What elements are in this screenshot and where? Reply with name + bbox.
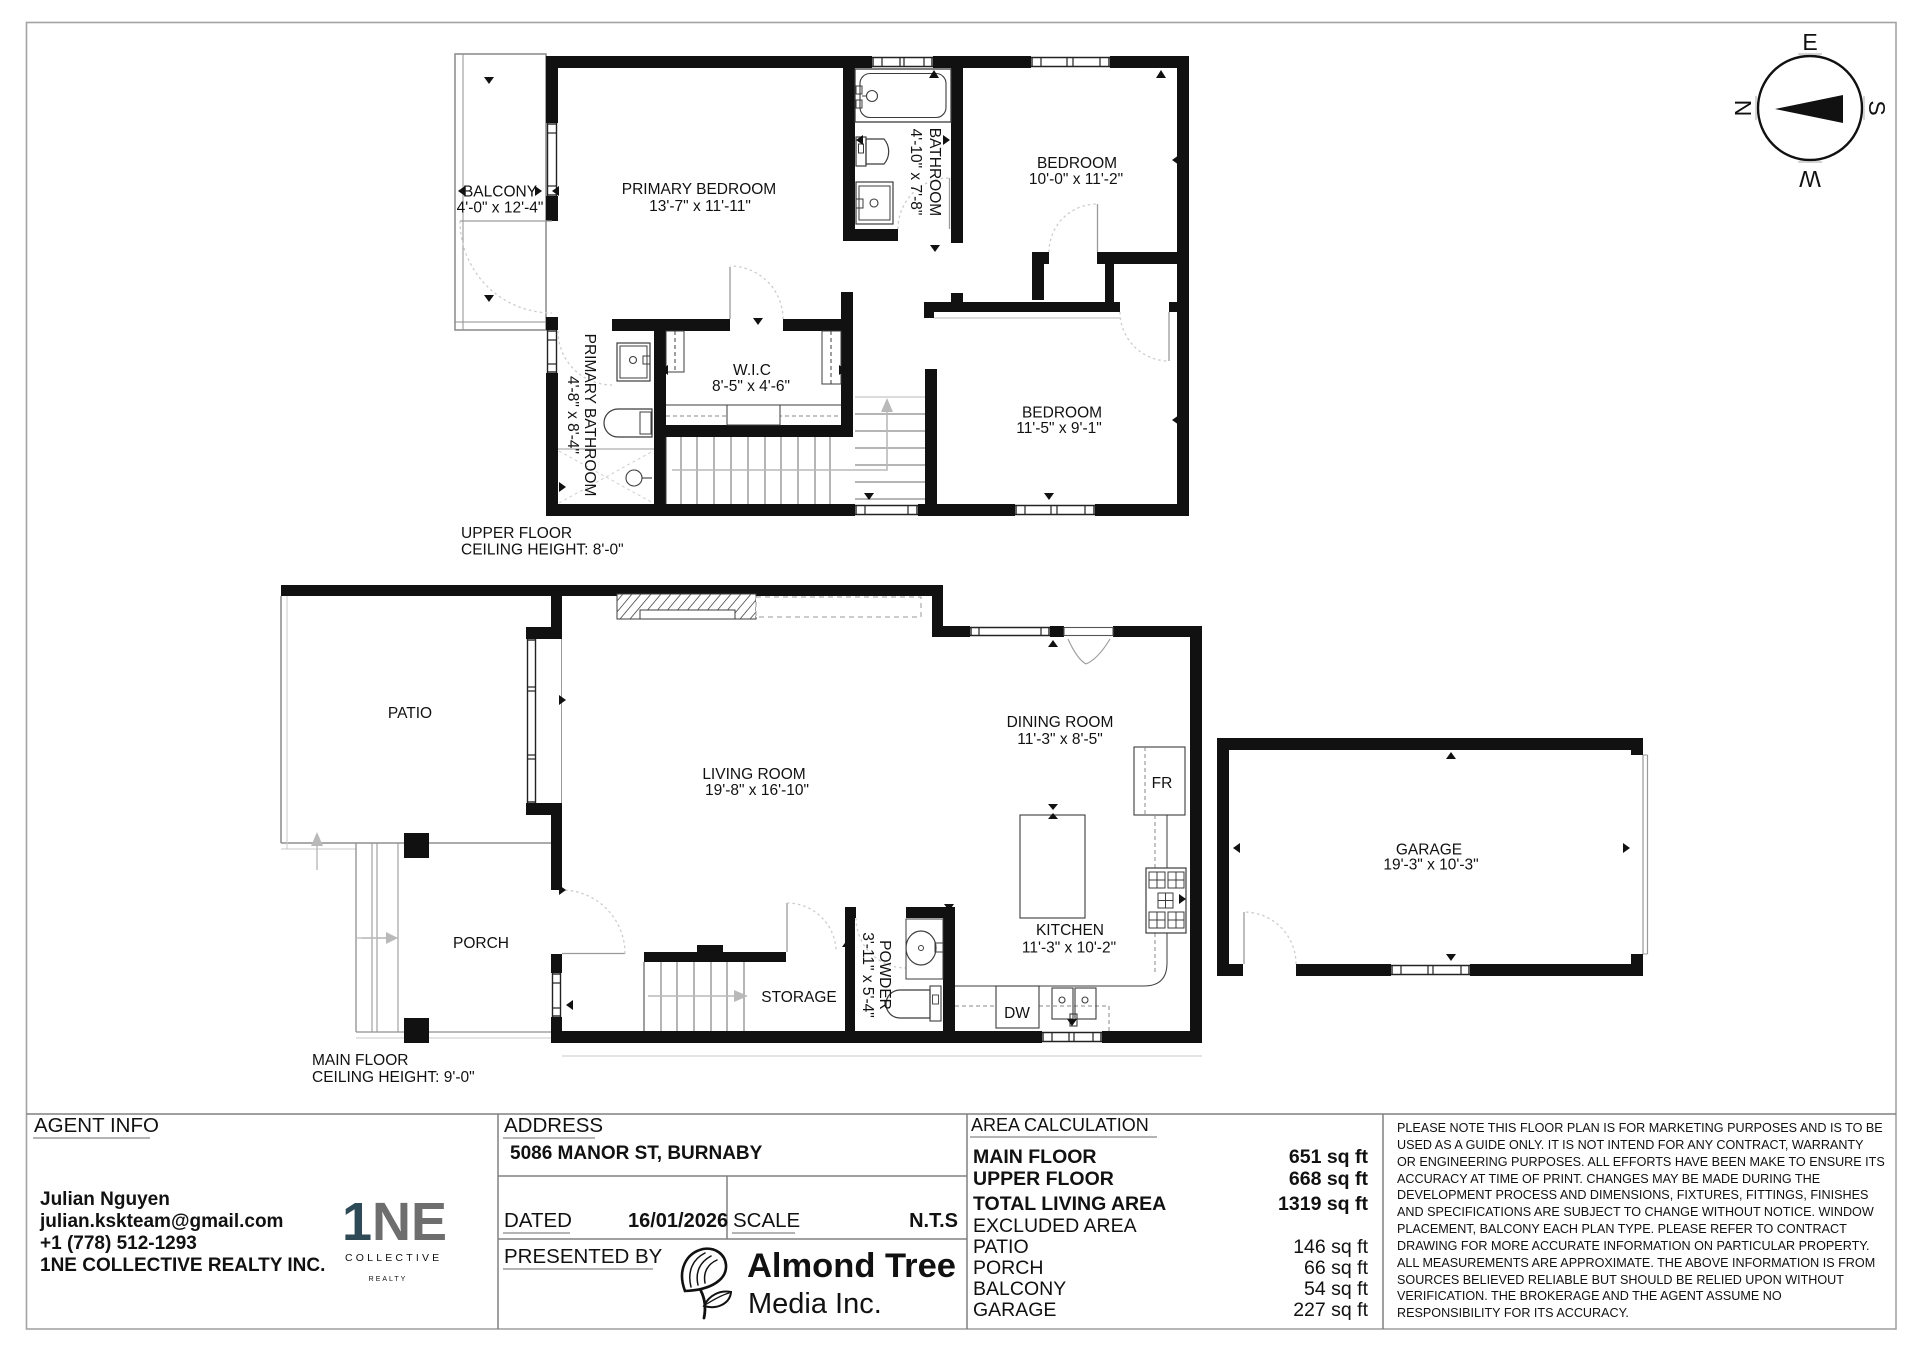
svg-text:POWDER3'-11" x 5'-4": POWDER3'-11" x 5'-4"	[859, 932, 893, 1018]
svg-text:EXCLUDED AREA: EXCLUDED AREA	[973, 1215, 1137, 1237]
svg-text:BEDROOM: BEDROOM	[1037, 155, 1117, 172]
svg-text:W: W	[1799, 166, 1821, 192]
svg-text:PATIO: PATIO	[973, 1236, 1029, 1258]
svg-text:USED AS A GUIDE ONLY. IT IS NO: USED AS A GUIDE ONLY. IT IS NOT INTEND F…	[1397, 1138, 1864, 1152]
svg-text:REALTY: REALTY	[369, 1276, 408, 1283]
svg-text:AND SPECIFICATIONS ARE SUBJECT: AND SPECIFICATIONS ARE SUBJECT TO CHANGE…	[1397, 1205, 1874, 1219]
svg-text:PORCH: PORCH	[973, 1257, 1043, 1279]
svg-text:5086 MANOR ST, BURNABY: 5086 MANOR ST, BURNABY	[510, 1143, 763, 1164]
svg-text:TOTAL LIVING AREA: TOTAL LIVING AREA	[973, 1193, 1166, 1215]
svg-text:N.T.S: N.T.S	[909, 1210, 958, 1232]
svg-text:8'-5" x 4'-6": 8'-5" x 4'-6"	[712, 378, 790, 395]
svg-text:DATED: DATED	[504, 1209, 572, 1232]
svg-text:OR ENGINEERING PURPOSES. ALL E: OR ENGINEERING PURPOSES. ALL EFFORTS HAV…	[1397, 1155, 1885, 1169]
svg-text:DW: DW	[1004, 1005, 1030, 1022]
svg-text:1NE COLLECTIVE REALTY INC.: 1NE COLLECTIVE REALTY INC.	[40, 1255, 325, 1276]
svg-text:DINING ROOM: DINING ROOM	[1007, 714, 1114, 731]
svg-text:10'-0" x 11'-2": 10'-0" x 11'-2"	[1029, 171, 1123, 188]
svg-text:CEILING HEIGHT: 9'-0": CEILING HEIGHT: 9'-0"	[312, 1069, 475, 1086]
svg-text:AREA CALCULATION: AREA CALCULATION	[971, 1115, 1149, 1135]
svg-text:66 sq ft: 66 sq ft	[1304, 1257, 1369, 1279]
svg-text:+1 (778) 512-1293: +1 (778) 512-1293	[40, 1233, 197, 1254]
svg-text:SCALE: SCALE	[733, 1209, 800, 1232]
svg-text:ADDRESS: ADDRESS	[504, 1114, 603, 1137]
svg-text:11'-3" x 10'-2": 11'-3" x 10'-2"	[1022, 940, 1116, 957]
svg-text:N: N	[1730, 100, 1756, 117]
svg-text:S: S	[1864, 100, 1890, 115]
svg-text:PRIMARY BEDROOM: PRIMARY BEDROOM	[622, 181, 776, 198]
svg-text:RESPONSIBILITY FOR ITS ACCURAC: RESPONSIBILITY FOR ITS ACCURACY.	[1397, 1306, 1629, 1320]
svg-text:julian.kskteam@gmail.com: julian.kskteam@gmail.com	[39, 1211, 283, 1232]
svg-text:W.I.C: W.I.C	[733, 362, 771, 379]
svg-text:ALL MEASUREMENTS ARE APPROXIMA: ALL MEASUREMENTS ARE APPROXIMATE. THE AB…	[1397, 1256, 1875, 1270]
svg-text:227 sq ft: 227 sq ft	[1293, 1299, 1368, 1321]
svg-text:Media Inc.: Media Inc.	[748, 1288, 882, 1320]
svg-text:ACCURACY AT TIME OF PRINT. CHA: ACCURACY AT TIME OF PRINT. CHANGES MAY B…	[1397, 1172, 1820, 1186]
svg-text:BEDROOM: BEDROOM	[1022, 405, 1102, 422]
svg-text:UPPER FLOOR: UPPER FLOOR	[973, 1168, 1114, 1190]
svg-text:4'-0" x 12'-4": 4'-0" x 12'-4"	[457, 200, 544, 217]
svg-text:KITCHEN: KITCHEN	[1036, 922, 1104, 939]
svg-text:CEILING HEIGHT: 8'-0": CEILING HEIGHT: 8'-0"	[461, 542, 624, 559]
svg-text:BALCONY: BALCONY	[463, 184, 537, 201]
svg-text:UPPER FLOOR: UPPER FLOOR	[461, 525, 572, 542]
svg-text:146 sq ft: 146 sq ft	[1293, 1236, 1368, 1258]
svg-text:E: E	[1802, 29, 1817, 55]
svg-text:1NE: 1NE	[342, 1192, 447, 1252]
svg-text:Almond Tree: Almond Tree	[747, 1247, 956, 1285]
svg-text:DEVELOPMENT PROCESS AND DIMENS: DEVELOPMENT PROCESS AND DIMENSIONS, FIXT…	[1397, 1188, 1868, 1202]
svg-text:AGENT INFO: AGENT INFO	[34, 1114, 159, 1137]
svg-text:FR: FR	[1152, 775, 1173, 792]
svg-text:11'-3" x 8'-5": 11'-3" x 8'-5"	[1017, 731, 1103, 748]
svg-text:MAIN FLOOR: MAIN FLOOR	[973, 1146, 1096, 1168]
svg-text:651 sq ft: 651 sq ft	[1289, 1146, 1369, 1168]
svg-text:16/01/2026: 16/01/2026	[628, 1210, 728, 1232]
svg-text:COLLECTIVE: COLLECTIVE	[345, 1252, 442, 1264]
svg-text:BALCONY: BALCONY	[973, 1278, 1066, 1300]
svg-text:SOURCES BELIEVED RELIABLE BUT: SOURCES BELIEVED RELIABLE BUT SHOULD BE …	[1397, 1273, 1844, 1287]
svg-text:PLEASE NOTE THIS FLOOR PLAN IS: PLEASE NOTE THIS FLOOR PLAN IS FOR MARKE…	[1397, 1121, 1883, 1135]
svg-text:LIVING ROOM: LIVING ROOM	[702, 766, 805, 783]
svg-text:Julian Nguyen: Julian Nguyen	[40, 1189, 170, 1210]
svg-text:STORAGE: STORAGE	[761, 989, 837, 1006]
svg-text:PRESENTED BY: PRESENTED BY	[504, 1245, 663, 1268]
svg-text:19'-3" x 10'-3": 19'-3" x 10'-3"	[1383, 857, 1478, 874]
svg-text:54 sq ft: 54 sq ft	[1304, 1278, 1369, 1300]
svg-text:11'-5" x 9'-1": 11'-5" x 9'-1"	[1016, 420, 1102, 437]
svg-text:GARAGE: GARAGE	[973, 1299, 1056, 1321]
svg-text:DRAWING FOR MORE ACCURATE INFO: DRAWING FOR MORE ACCURATE INFORMATION ON…	[1397, 1239, 1870, 1253]
svg-text:MAIN FLOOR: MAIN FLOOR	[312, 1052, 408, 1069]
svg-text:PLACEMENT, BALCONY EACH PLAN T: PLACEMENT, BALCONY EACH PLAN TYPE. PLEAS…	[1397, 1222, 1847, 1236]
svg-text:PATIO: PATIO	[388, 705, 432, 722]
svg-text:1319 sq ft: 1319 sq ft	[1278, 1193, 1368, 1215]
svg-text:VERIFICATION. THE BROKERAGE AN: VERIFICATION. THE BROKERAGE AND THE AGEN…	[1397, 1289, 1782, 1303]
svg-text:19'-8" x 16'-10": 19'-8" x 16'-10"	[705, 782, 809, 799]
svg-text:13'-7" x 11'-11": 13'-7" x 11'-11"	[649, 198, 751, 215]
svg-text:668 sq ft: 668 sq ft	[1289, 1168, 1369, 1190]
svg-text:PORCH: PORCH	[453, 935, 509, 952]
